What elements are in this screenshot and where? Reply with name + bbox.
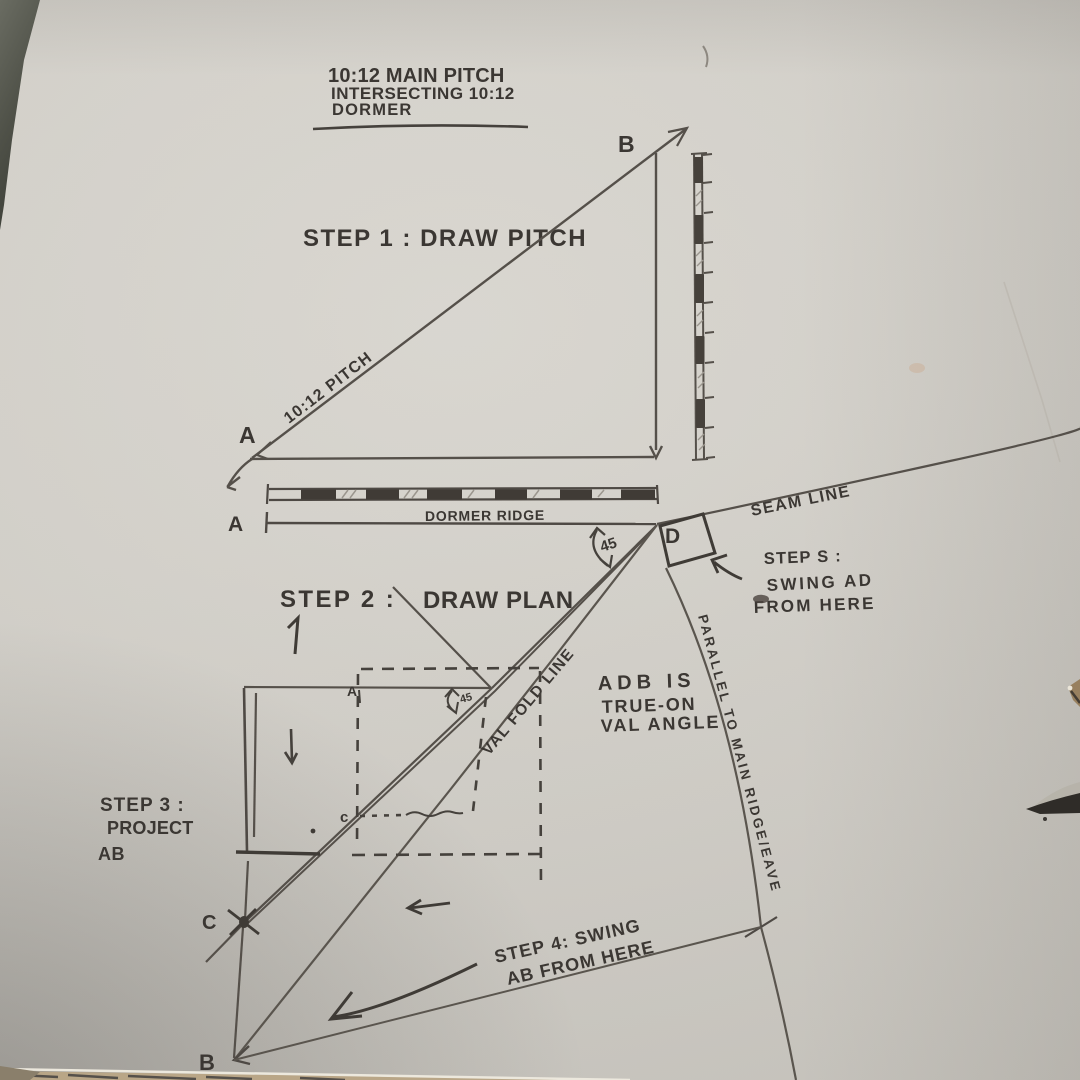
svg-text:FROM HERE: FROM HERE (753, 594, 875, 617)
svg-text:D: D (665, 525, 680, 548)
svg-text:AB: AB (98, 844, 125, 864)
svg-text:STEP S :: STEP S : (764, 547, 843, 568)
svg-text:VAL ANGLE: VAL ANGLE (600, 712, 720, 736)
svg-text:C: C (202, 912, 216, 934)
svg-text:STEP 2 :: STEP 2 : (280, 586, 396, 613)
svg-text:DORMER RIDGE: DORMER RIDGE (425, 507, 545, 524)
svg-text:PARALLEL TO MAIN RIDGE/EAVE: PARALLEL TO MAIN RIDGE/EAVE (695, 613, 784, 895)
svg-text:SEAM LINE: SEAM LINE (749, 483, 852, 520)
svg-text:DORMER: DORMER (332, 101, 413, 119)
svg-text:c: c (340, 809, 348, 826)
svg-text:VAL FOLD LINE: VAL FOLD LINE (479, 645, 578, 758)
svg-text:A: A (239, 422, 256, 448)
svg-text:A: A (228, 513, 243, 536)
svg-text:DRAW PLAN: DRAW PLAN (423, 587, 574, 614)
svg-text:45: 45 (598, 534, 619, 555)
svg-text:PROJECT: PROJECT (107, 818, 193, 838)
svg-text:SWING AD: SWING AD (766, 570, 874, 595)
svg-text:10:12 PITCH: 10:12 PITCH (281, 349, 376, 427)
svg-text:B: B (618, 131, 635, 157)
svg-text:STEP 3 :: STEP 3 : (100, 795, 185, 816)
svg-text:B: B (199, 1050, 215, 1075)
svg-text:A: A (347, 683, 357, 699)
svg-text:ADB IS: ADB IS (597, 670, 696, 695)
svg-text:45: 45 (459, 691, 474, 706)
svg-text:STEP 1 : DRAW PITCH: STEP 1 : DRAW PITCH (303, 225, 587, 252)
